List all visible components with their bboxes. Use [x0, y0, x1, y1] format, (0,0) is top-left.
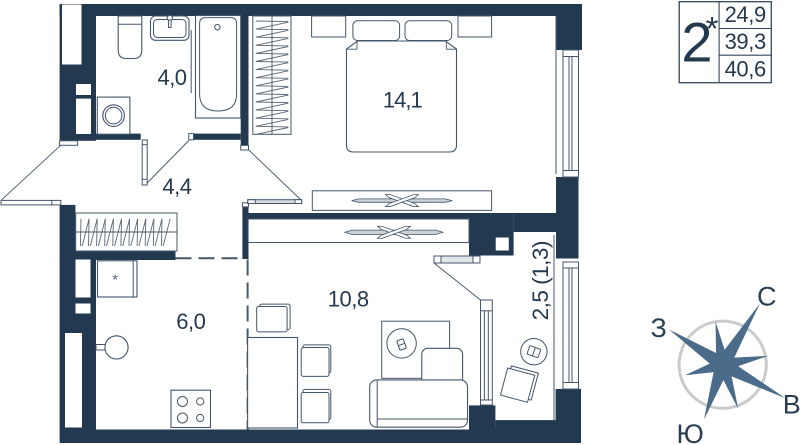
svg-text:В: В — [783, 390, 800, 420]
svg-text:24,9: 24,9 — [725, 2, 766, 27]
svg-text:4,0: 4,0 — [157, 65, 186, 90]
svg-text:Ю: Ю — [676, 419, 703, 445]
svg-text:4,4: 4,4 — [162, 174, 191, 199]
svg-text:*: * — [112, 272, 118, 289]
svg-text:2,5 (1,3): 2,5 (1,3) — [528, 241, 553, 320]
svg-text:6,0: 6,0 — [176, 309, 205, 334]
svg-text:*: * — [706, 10, 719, 47]
svg-text:З: З — [651, 313, 667, 343]
svg-text:С: С — [757, 281, 777, 311]
svg-text:40,6: 40,6 — [725, 56, 766, 81]
svg-text:39,3: 39,3 — [725, 29, 766, 54]
svg-text:14,1: 14,1 — [383, 88, 423, 113]
svg-text:10,8: 10,8 — [328, 286, 369, 311]
